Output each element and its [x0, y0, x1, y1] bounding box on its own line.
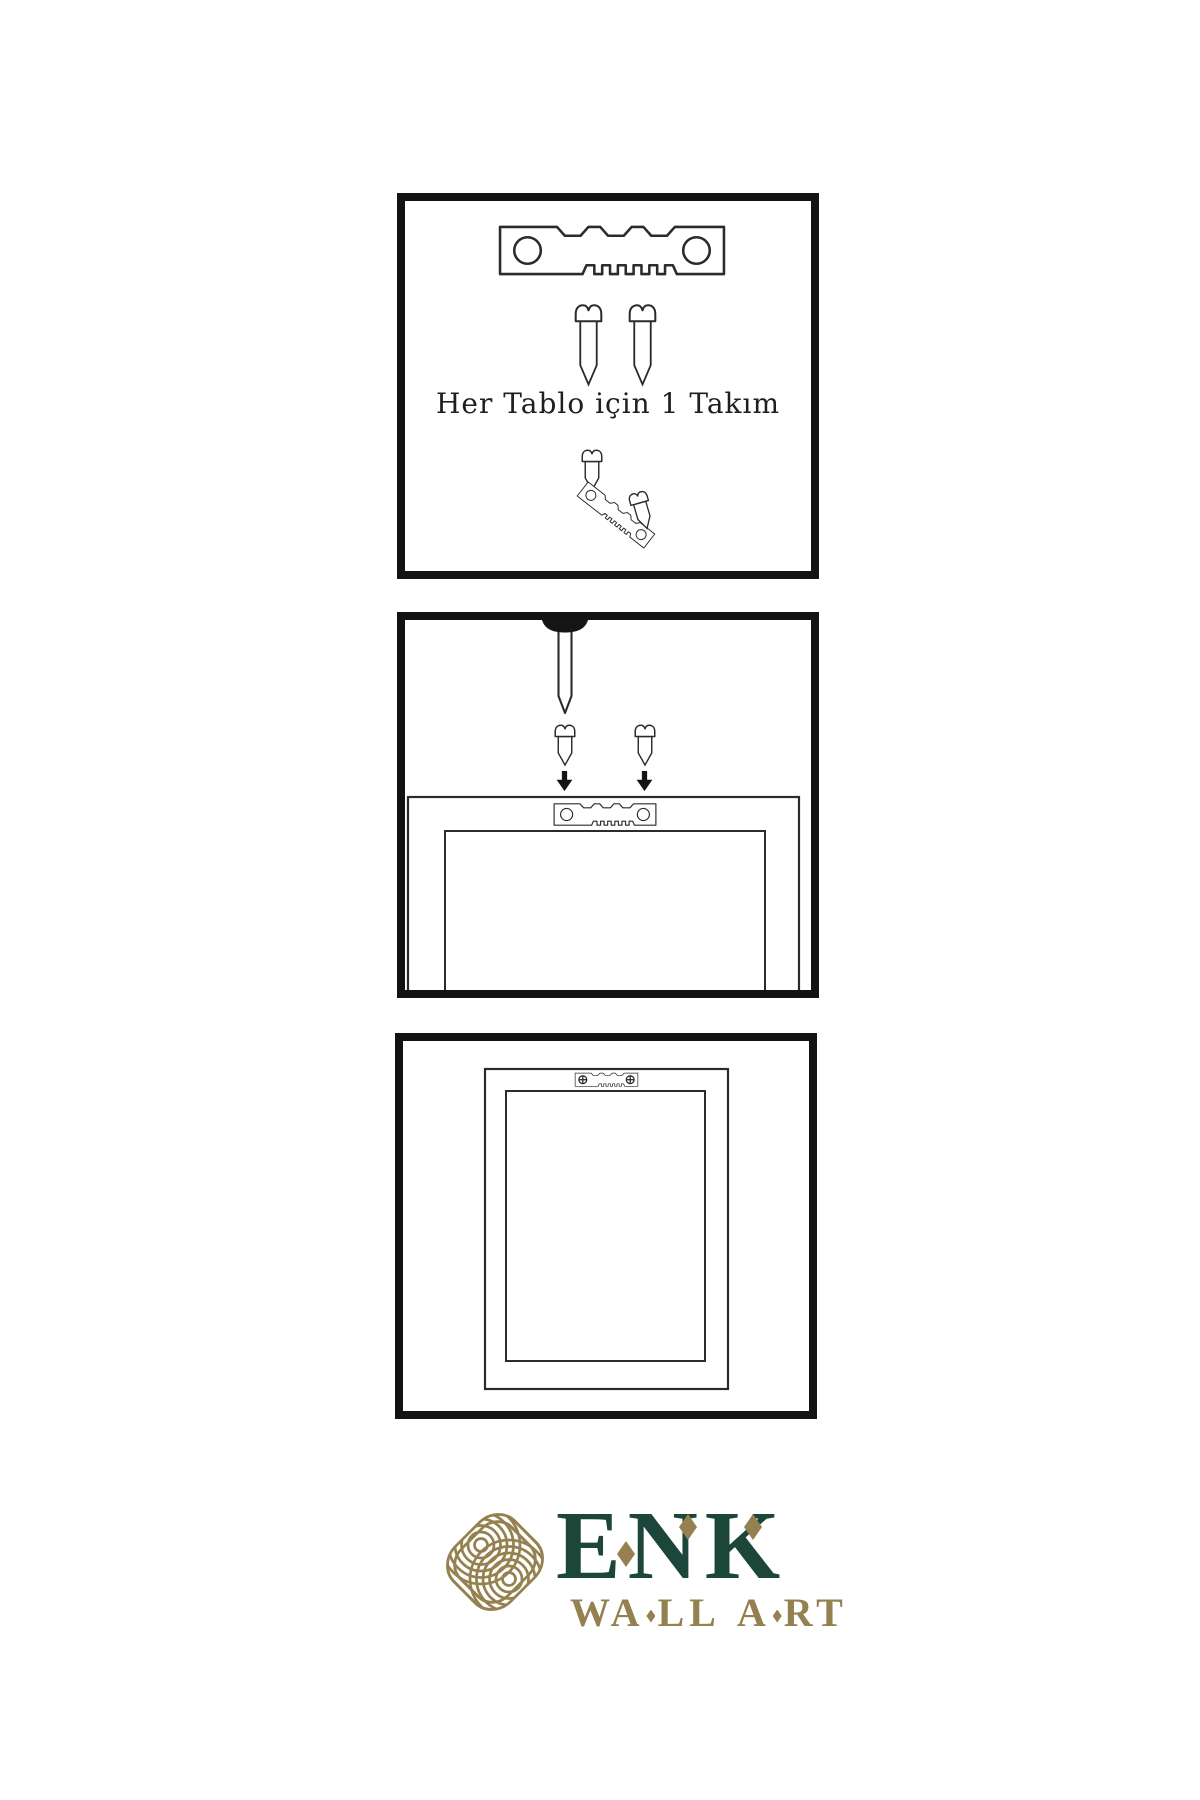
frame-back-icon [408, 797, 799, 990]
sawtooth-hanger-icon [554, 804, 656, 825]
wall-nail-icon [542, 620, 588, 713]
screw-icon [630, 305, 656, 384]
sawtooth-hanger-mounted-icon [575, 1073, 638, 1086]
tagline-part: WA [570, 1593, 644, 1633]
diamond-accent-icon [773, 1610, 782, 1623]
interlocking-knot-icon [438, 1500, 552, 1624]
tagline-part: LL [657, 1593, 720, 1633]
step3-panel-hung-frame [395, 1033, 817, 1419]
screw-into-hanger-icon [577, 450, 656, 548]
tagline-part: A [737, 1593, 771, 1633]
step1-panel-hardware-kit: Her Tablo için 1 Takım [397, 193, 819, 579]
down-arrow-icon [557, 771, 573, 791]
diamond-accent-icon [646, 1610, 655, 1623]
step2-panel-mounting [397, 612, 819, 998]
screw-icon [576, 305, 602, 384]
sawtooth-hanger-icon [500, 227, 724, 274]
product-instruction-image: { "page": { "background": "#ffffff", "la… [0, 0, 1200, 1800]
brand-tagline: WALL ART [570, 1593, 848, 1633]
step2-drawing [405, 620, 811, 990]
step1-drawing [405, 201, 811, 571]
tagline-part: RT [784, 1593, 848, 1633]
screw-icon [635, 725, 655, 765]
frame-back-icon [485, 1069, 728, 1389]
down-arrow-icon [637, 771, 653, 791]
brand-wordmark: ENK [556, 1498, 787, 1593]
screw-icon [555, 725, 575, 765]
step3-drawing [403, 1041, 809, 1411]
step1-caption: Her Tablo için 1 Takım [405, 387, 811, 420]
